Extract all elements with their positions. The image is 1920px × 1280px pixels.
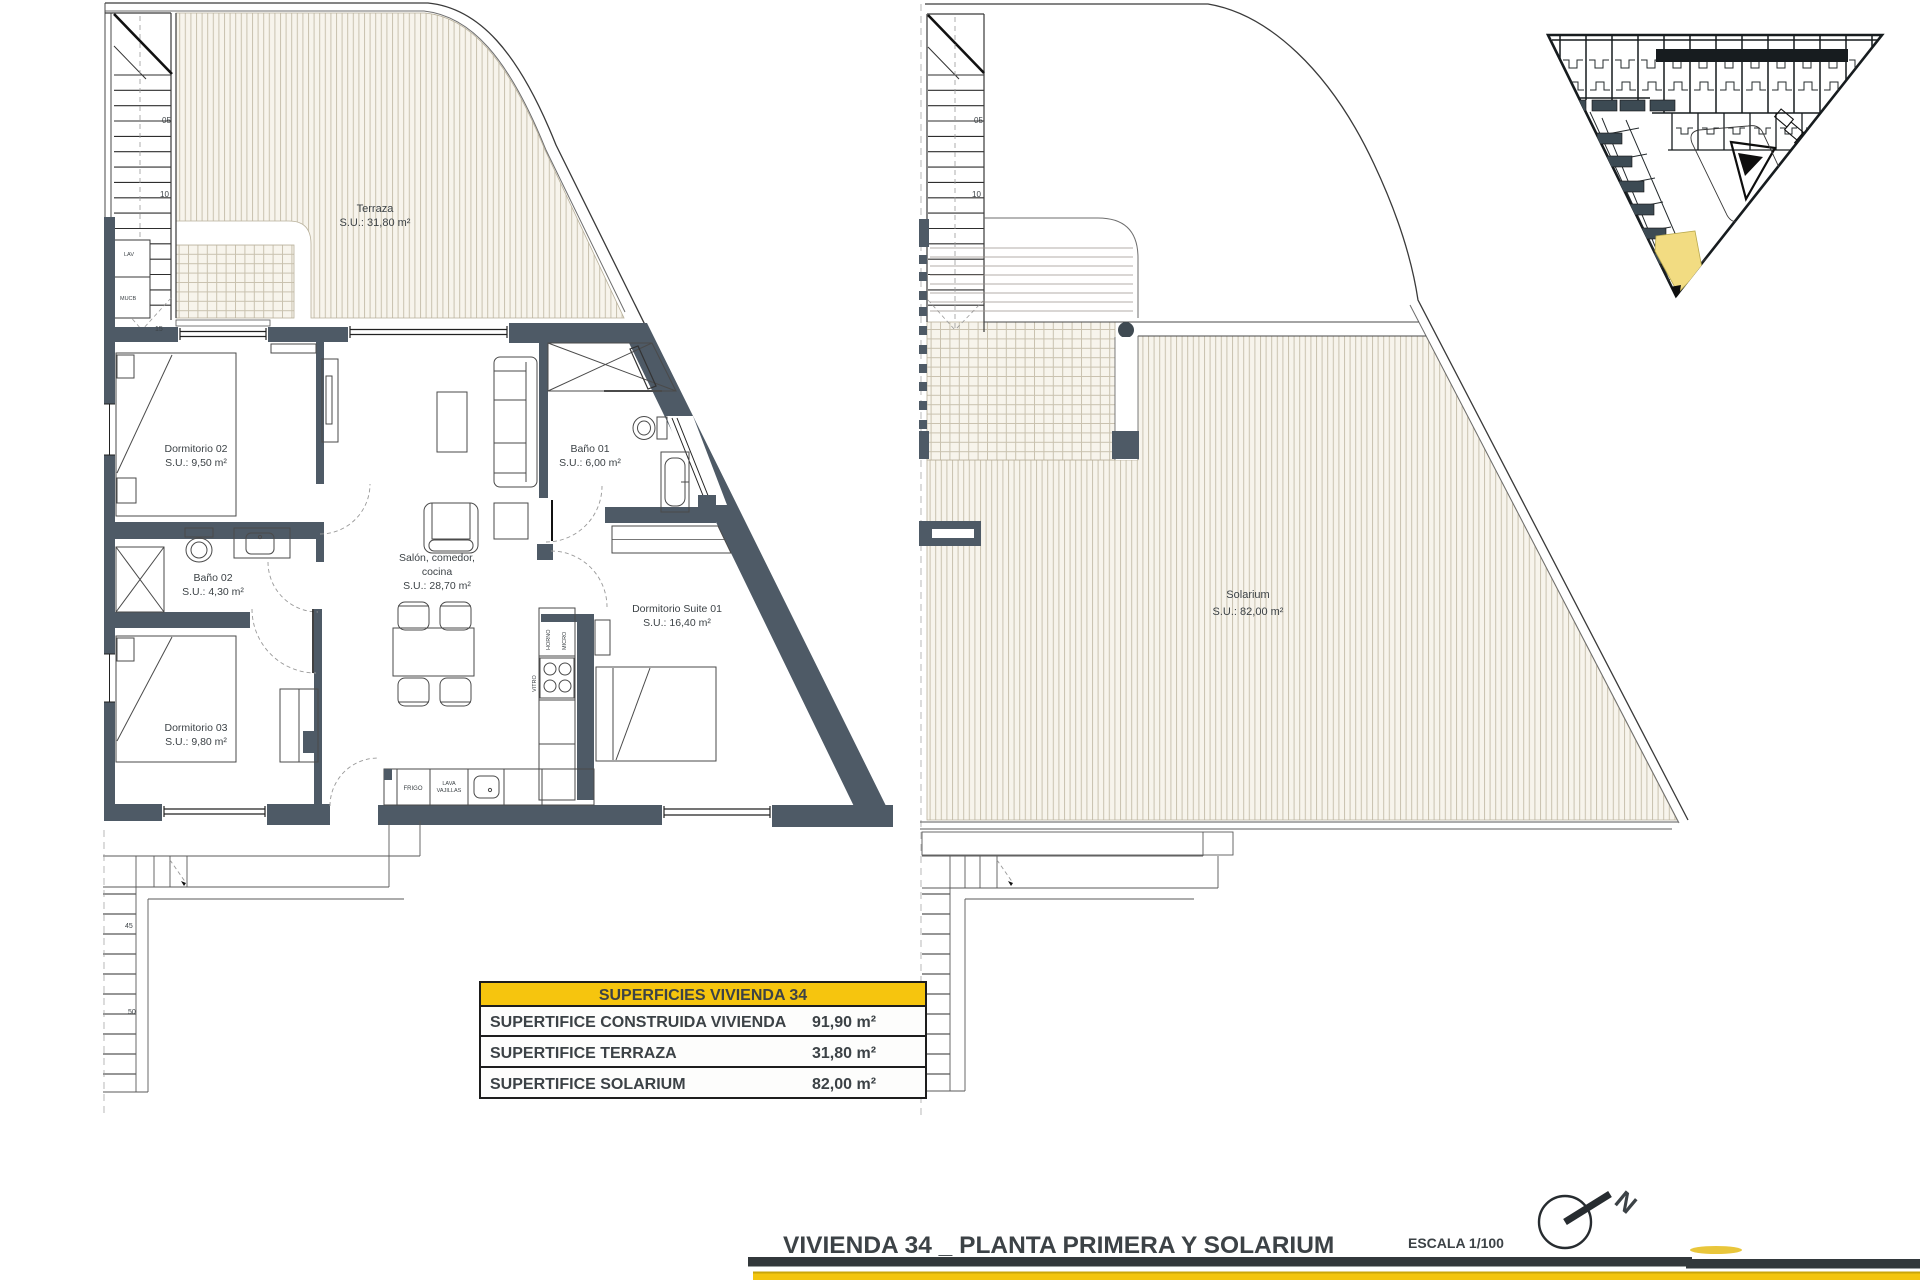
svg-text:S.U.: 28,70 m²: S.U.: 28,70 m²	[403, 580, 471, 592]
svg-text:Solarium: Solarium	[1226, 589, 1269, 601]
svg-text:31,80 m²: 31,80 m²	[812, 1045, 876, 1062]
svg-text:S.U.: 6,00 m²: S.U.: 6,00 m²	[559, 457, 621, 469]
svg-text:SUPERTIFICE CONSTRUIDA VIVIEND: SUPERTIFICE CONSTRUIDA VIVIENDA	[490, 1014, 787, 1031]
svg-text:LAV: LAV	[124, 252, 134, 258]
svg-text:05: 05	[974, 116, 983, 125]
svg-text:10: 10	[972, 190, 981, 199]
svg-text:15: 15	[155, 326, 163, 333]
svg-text:FRIGO: FRIGO	[404, 786, 423, 792]
svg-text:SUPERFICIES VIVIENDA 34: SUPERFICIES VIVIENDA 34	[599, 987, 807, 1004]
svg-text:VIVIENDA 34 _ PLANTA PRIMERA Y: VIVIENDA 34 _ PLANTA PRIMERA Y SOLARIUM	[783, 1232, 1334, 1259]
svg-text:S.U.: 31,80 m²: S.U.: 31,80 m²	[340, 217, 411, 229]
svg-text:S.U.: 16,40 m²: S.U.: 16,40 m²	[643, 617, 711, 629]
svg-text:50: 50	[128, 1009, 136, 1016]
svg-text:S.U.: 4,30 m²: S.U.: 4,30 m²	[182, 586, 244, 598]
svg-text:SUPERTIFICE SOLARIUM: SUPERTIFICE SOLARIUM	[490, 1076, 686, 1093]
svg-text:82,00 m²: 82,00 m²	[812, 1076, 876, 1093]
svg-text:MICRO: MICRO	[562, 631, 568, 650]
svg-text:45: 45	[125, 923, 133, 930]
svg-text:LAVA: LAVA	[442, 781, 456, 787]
svg-text:ESCALA 1/100: ESCALA 1/100	[1408, 1235, 1504, 1251]
svg-text:Baño 01: Baño 01	[570, 443, 609, 455]
svg-text:VAJILLAS: VAJILLAS	[437, 788, 462, 794]
svg-text:Dormitorio Suite 01: Dormitorio Suite 01	[632, 603, 722, 615]
svg-text:Baño 02: Baño 02	[193, 572, 232, 584]
svg-text:HORNO: HORNO	[546, 629, 552, 650]
svg-text:10: 10	[160, 190, 169, 199]
svg-text:Dormitorio 03: Dormitorio 03	[164, 722, 227, 734]
svg-text:S.U.: 9,80 m²: S.U.: 9,80 m²	[165, 736, 227, 748]
svg-text:S.U.: 82,00 m²: S.U.: 82,00 m²	[1213, 606, 1284, 618]
svg-text:05: 05	[162, 116, 171, 125]
svg-text:VITRO: VITRO	[532, 674, 538, 692]
svg-text:91,90 m²: 91,90 m²	[812, 1014, 876, 1031]
svg-text:Dormitorio 02: Dormitorio 02	[164, 443, 227, 455]
svg-text:cocina: cocina	[422, 566, 453, 578]
svg-text:SUPERTIFICE TERRAZA: SUPERTIFICE TERRAZA	[490, 1045, 677, 1062]
svg-text:Terraza: Terraza	[357, 203, 395, 215]
svg-text:MUCB: MUCB	[120, 296, 137, 302]
svg-text:Salón, comedor,: Salón, comedor,	[399, 552, 475, 564]
svg-text:S.U.: 9,50 m²: S.U.: 9,50 m²	[165, 457, 227, 469]
